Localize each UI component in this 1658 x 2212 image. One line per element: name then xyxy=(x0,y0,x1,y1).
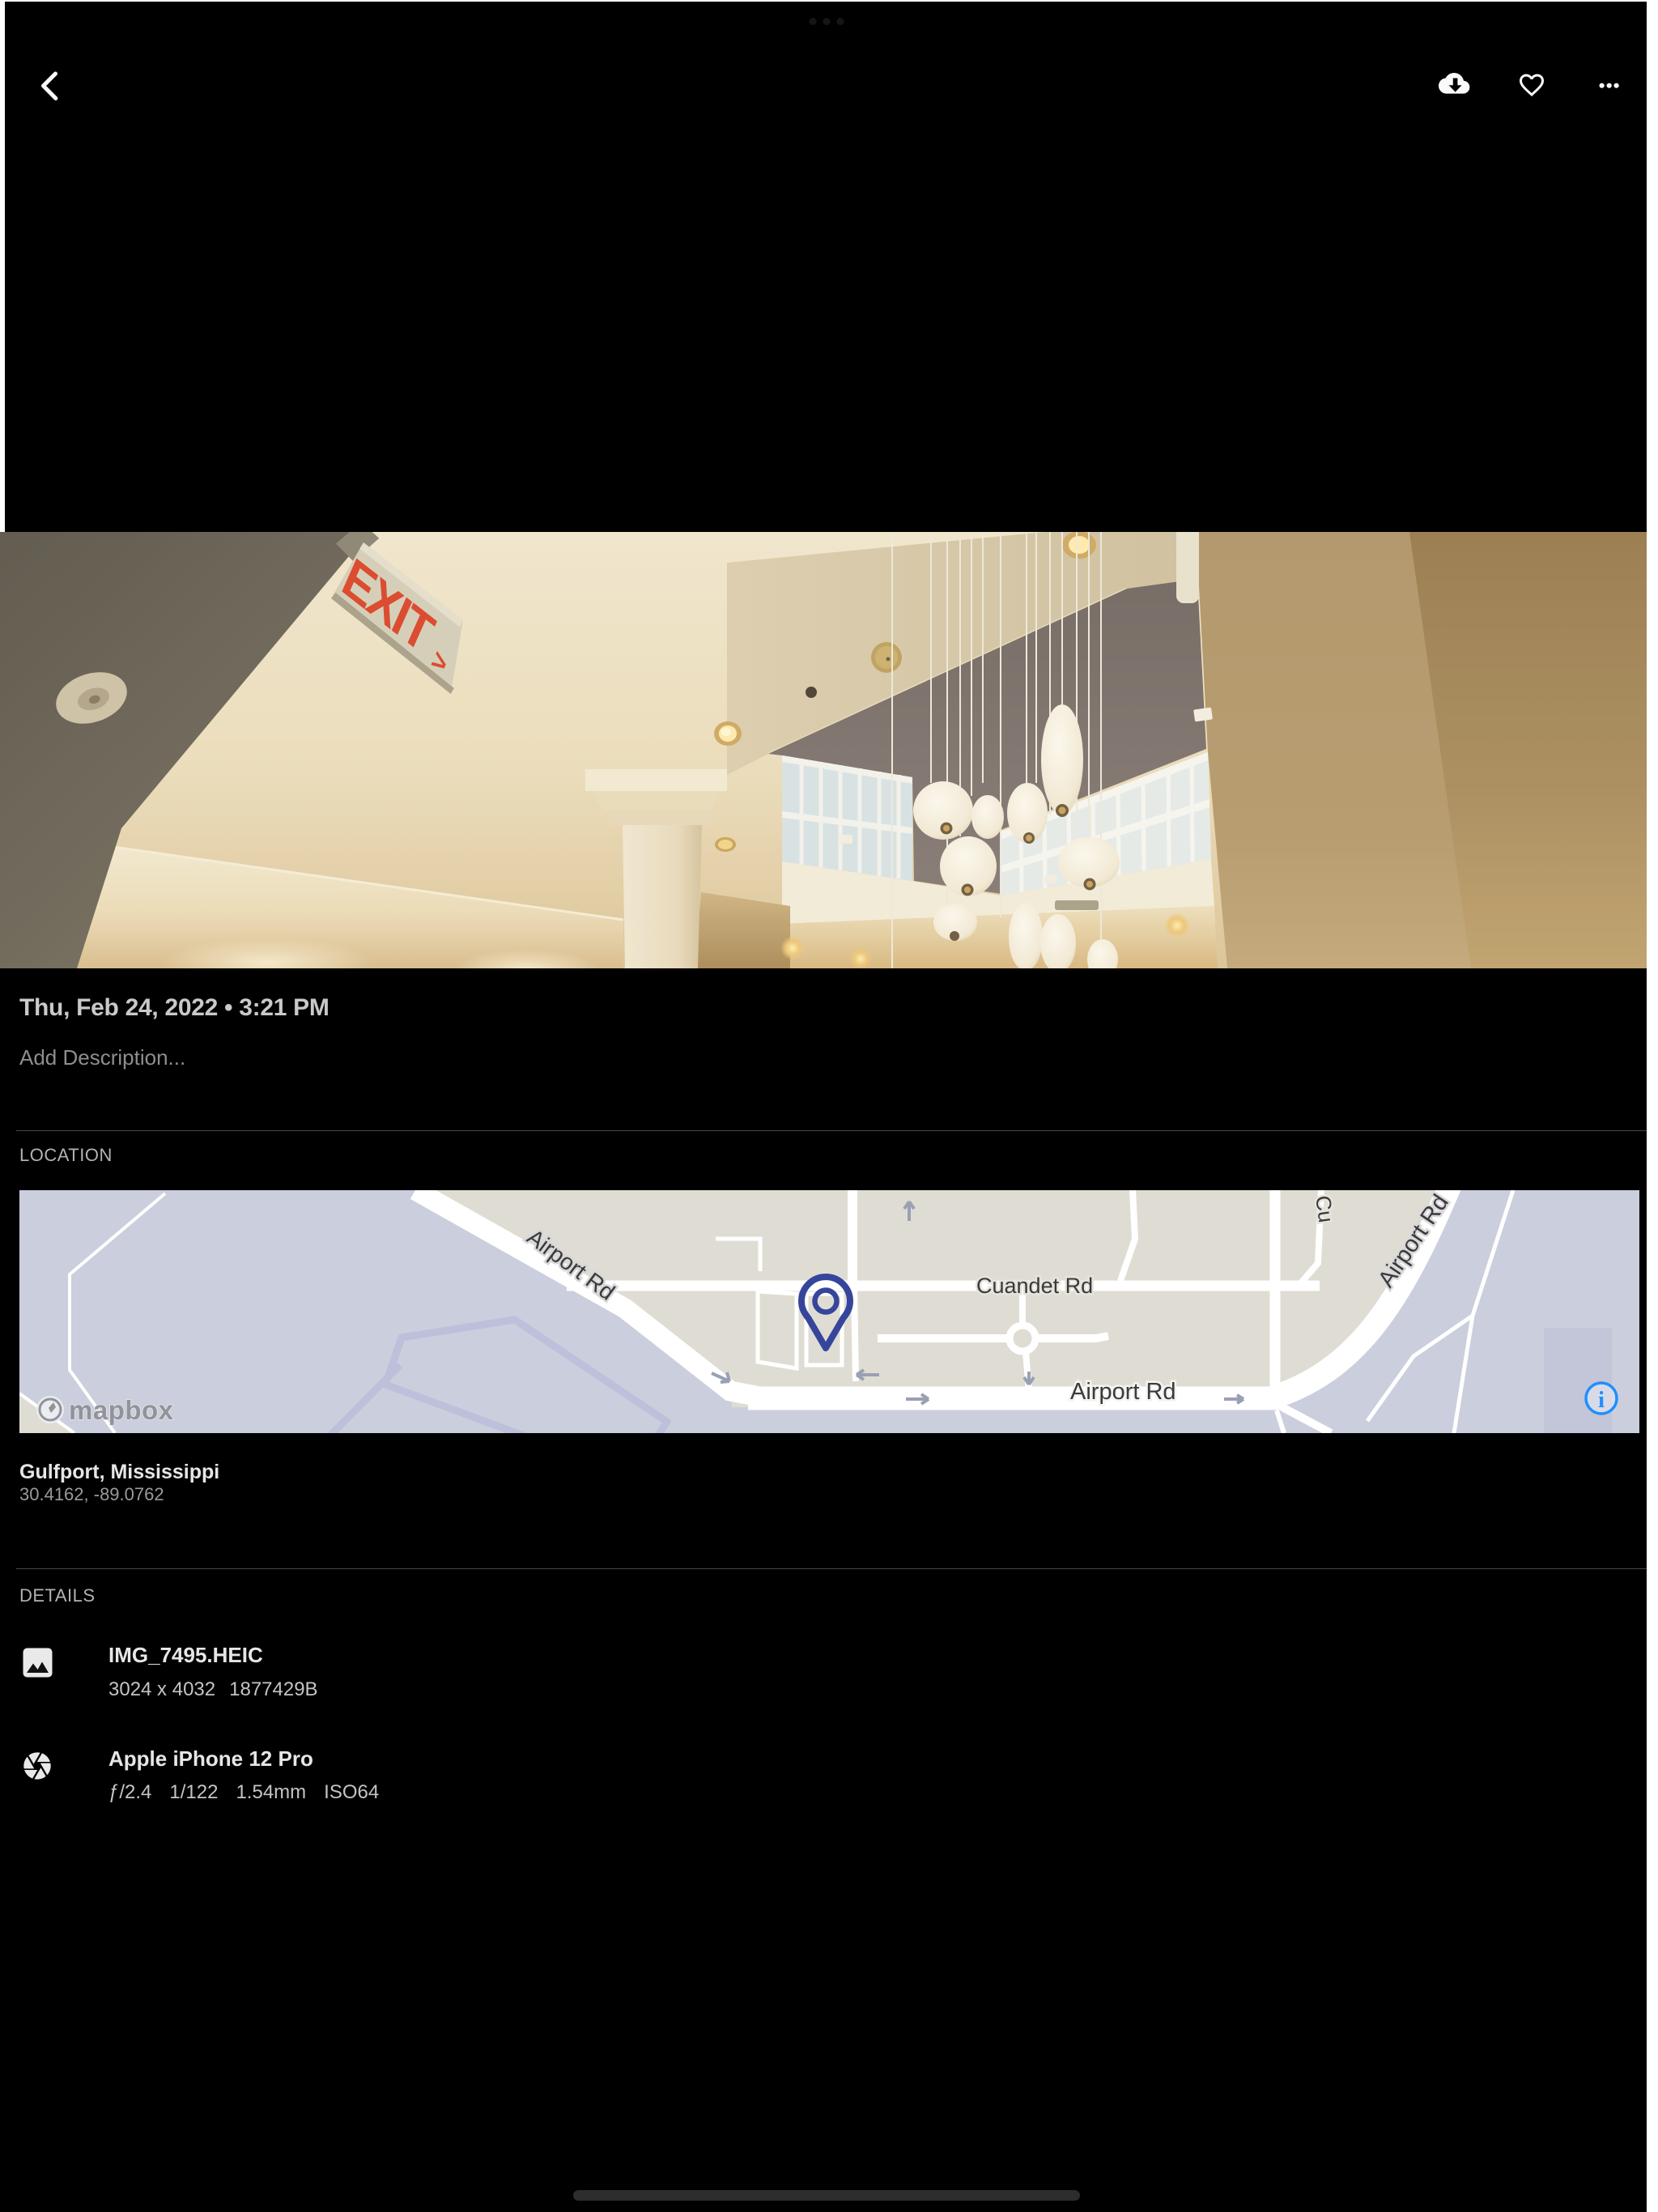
svg-text:Cu: Cu xyxy=(1311,1194,1338,1224)
svg-text:Airport Rd: Airport Rd xyxy=(1070,1379,1176,1405)
svg-text:mapbox: mapbox xyxy=(69,1395,174,1425)
svg-text:Cuandet Rd: Cuandet Rd xyxy=(976,1274,1093,1298)
svg-text:i: i xyxy=(1598,1387,1605,1413)
